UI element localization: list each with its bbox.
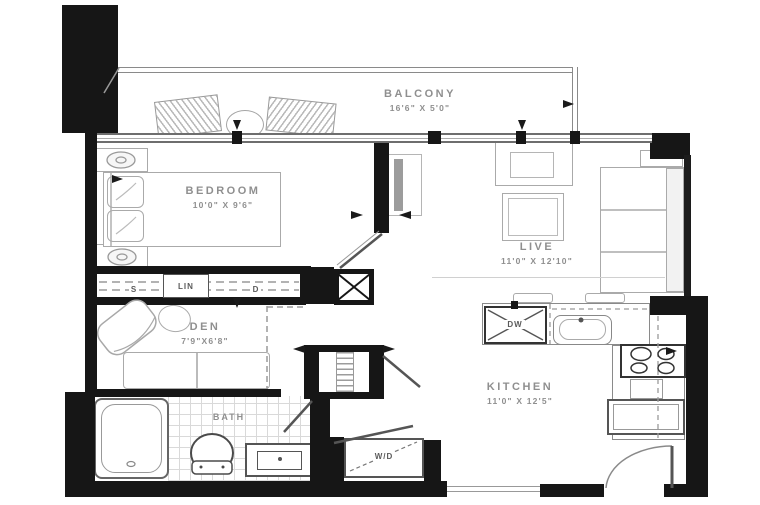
dishwasher-text: DW	[505, 320, 524, 329]
den-dims: 7'9"X6'8"	[127, 337, 283, 347]
closet-lin-label: LIN	[163, 282, 209, 291]
live-label: LIVE 11'0" X 12'10"	[458, 241, 616, 266]
den-label: DEN 7'9"X6'8"	[127, 321, 283, 346]
pillow-creases	[116, 183, 136, 234]
balcony-name: BALCONY	[340, 88, 500, 101]
closet-door-leaf	[383, 356, 420, 387]
plan-linework-layer	[0, 0, 760, 505]
balcony-label: BALCONY 16'6" X 5'0"	[340, 88, 500, 113]
bedroom-label: BEDROOM 10'0" X 9'6"	[146, 185, 300, 210]
lamp-icon	[107, 152, 136, 265]
closet-s-text: S	[129, 285, 139, 294]
washer-dryer-label: W/D	[346, 452, 422, 461]
closet-s-label: S	[122, 285, 146, 294]
bedroom-name: BEDROOM	[146, 185, 300, 198]
closet-d-label: D	[244, 285, 268, 294]
entry-door-arc	[606, 446, 672, 488]
shaft-x-icon	[338, 274, 370, 300]
den-name: DEN	[127, 321, 283, 334]
balcony-dims: 16'6" X 5'0"	[340, 104, 500, 114]
floorplan-canvas: BALCONY 16'6" X 5'0" BEDROOM 10'0" X 9'6…	[0, 0, 760, 505]
bedroom-door-leaf	[340, 234, 382, 268]
bedroom-dims: 10'0" X 9'6"	[146, 201, 300, 211]
closet-lin-text: LIN	[176, 282, 196, 291]
door-leaves	[284, 231, 420, 443]
closet-d-text: D	[251, 285, 262, 294]
washer-dryer-text: W/D	[373, 452, 396, 461]
bath-name: BATH	[182, 412, 276, 422]
kitchen-label: KITCHEN 11'0" X 12'5"	[442, 381, 598, 406]
dimension-arrows	[112, 100, 677, 355]
dishwasher-label: DW	[486, 320, 544, 329]
railing-end-panel	[104, 68, 119, 93]
kitchen-dims: 11'0" X 12'5"	[442, 397, 598, 407]
toilet-icon	[191, 434, 233, 474]
live-dims: 11'0" X 12'10"	[458, 257, 616, 267]
bath-label: BATH	[182, 412, 276, 422]
entry-door	[606, 446, 672, 488]
bath-door-leaf	[284, 401, 312, 432]
live-name: LIVE	[458, 241, 616, 254]
kitchen-name: KITCHEN	[442, 381, 598, 394]
laundry-door-leaf	[334, 426, 413, 443]
